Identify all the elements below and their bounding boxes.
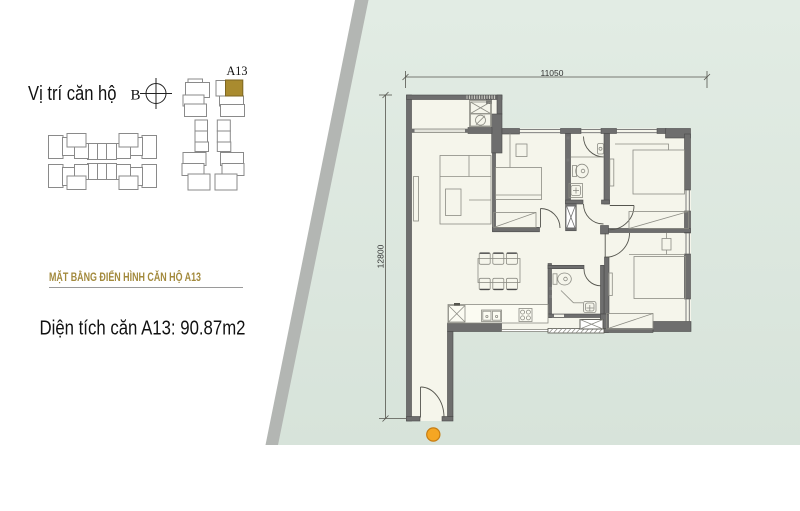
svg-text:MẶT BẰNG ĐIỂN HÌNH CĂN HỘ A13: MẶT BẰNG ĐIỂN HÌNH CĂN HỘ A13 <box>49 270 201 284</box>
svg-text:B: B <box>131 88 141 104</box>
svg-text:11050: 11050 <box>540 68 563 78</box>
svg-text:12800: 12800 <box>376 244 386 268</box>
svg-text:Vị trí căn hộ: Vị trí căn hộ <box>28 83 117 105</box>
svg-text:A13: A13 <box>227 63 248 78</box>
svg-text:Diện tích căn A13: 90.87m2: Diện tích căn A13: 90.87m2 <box>40 317 246 340</box>
